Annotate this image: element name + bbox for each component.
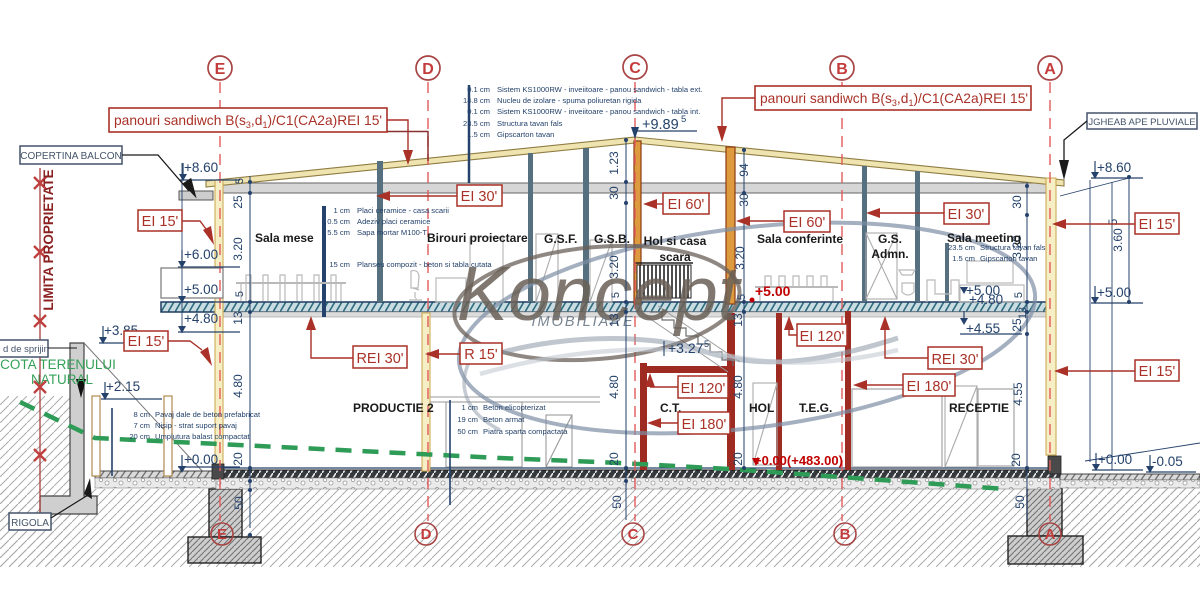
svg-text:Sistem KS1000RW - inveiitoare: Sistem KS1000RW - inveiitoare - panou sa…	[497, 85, 702, 94]
svg-text:Beton elicopterizat: Beton elicopterizat	[483, 403, 546, 412]
svg-text:+0.00: +0.00	[184, 452, 218, 467]
svg-text:EI 180': EI 180'	[682, 417, 727, 433]
svg-text:EI 30': EI 30'	[948, 207, 985, 223]
svg-text:+2.15: +2.15	[106, 379, 140, 394]
svg-text:25: 25	[231, 195, 245, 209]
svg-text:19 cm: 19 cm	[457, 415, 478, 424]
svg-text:5: 5	[736, 294, 748, 300]
svg-text:20: 20	[731, 452, 745, 466]
svg-text:Gipscarton tavan: Gipscarton tavan	[497, 130, 554, 139]
svg-text:Admn.: Admn.	[871, 247, 908, 261]
svg-text:Nisip - strat suport pavaj: Nisip - strat suport pavaj	[155, 421, 237, 430]
svg-text:50: 50	[1013, 495, 1027, 509]
svg-text:20 cm: 20 cm	[129, 432, 150, 441]
svg-text:1.23: 1.23	[607, 151, 621, 175]
svg-text:5: 5	[234, 178, 246, 184]
svg-text:-0.05: -0.05	[1152, 454, 1183, 469]
svg-text:Sala mese: Sala mese	[255, 231, 314, 245]
svg-text:R 15': R 15'	[464, 347, 498, 363]
svg-text:REI 30': REI 30'	[931, 352, 978, 368]
svg-text:LIMITA PROPRIETATE: LIMITA PROPRIETATE	[41, 169, 56, 310]
svg-text:50 cm: 50 cm	[457, 427, 478, 436]
svg-text:+3.27: +3.27	[668, 340, 704, 356]
svg-text:Structura tavan fals: Structura tavan fals	[980, 243, 1046, 252]
svg-text:Placi ceramice - casa scarii: Placi ceramice - casa scarii	[357, 206, 449, 215]
svg-text:Gipscarton tavan: Gipscarton tavan	[980, 254, 1037, 263]
svg-text:+6.00: +6.00	[184, 247, 218, 262]
svg-text:E: E	[217, 526, 227, 543]
svg-text:Sapa mortar M100-T: Sapa mortar M100-T	[357, 228, 427, 237]
svg-text:0.1 cm: 0.1 cm	[467, 85, 490, 94]
svg-text:Planseu compozit - beton si ta: Planseu compozit - beton si tabla cutata	[357, 260, 492, 269]
svg-text:5.5 cm: 5.5 cm	[327, 228, 350, 237]
svg-text:1.5 cm: 1.5 cm	[952, 254, 975, 263]
svg-text:A: A	[1045, 526, 1056, 543]
svg-text:13: 13	[1017, 307, 1029, 319]
svg-text:1 cm: 1 cm	[462, 403, 478, 412]
svg-text:REI 30': REI 30'	[356, 351, 403, 367]
svg-text:C: C	[628, 526, 639, 543]
svg-text:D: D	[422, 61, 434, 78]
svg-text:EI 180': EI 180'	[907, 379, 952, 395]
svg-text:1.5 cm: 1.5 cm	[467, 130, 490, 139]
svg-text:+5.00: +5.00	[755, 283, 791, 299]
svg-text:Sala conferinte: Sala conferinte	[757, 232, 843, 246]
svg-text:4.80: 4.80	[231, 374, 245, 398]
svg-text:A: A	[1044, 61, 1056, 78]
svg-text:Beton armat: Beton armat	[483, 415, 525, 424]
svg-text:7 cm: 7 cm	[134, 421, 150, 430]
svg-text:+8.60: +8.60	[184, 160, 218, 175]
svg-text:B: B	[836, 61, 848, 78]
svg-text:+5.00: +5.00	[184, 282, 218, 297]
svg-text:Structura tavan fals: Structura tavan fals	[497, 119, 563, 128]
svg-text:0.1 cm: 0.1 cm	[467, 107, 490, 116]
svg-text:13: 13	[731, 313, 745, 327]
svg-text:PRODUCTIE 2: PRODUCTIE 2	[353, 401, 434, 415]
svg-text:20: 20	[607, 452, 621, 466]
svg-text:Pavaj dale de beton prefabrica: Pavaj dale de beton prefabricat	[155, 410, 261, 419]
svg-text:20: 20	[1009, 453, 1023, 467]
svg-text:3.60: 3.60	[1111, 228, 1125, 252]
svg-text:+0.00(+483.00): +0.00(+483.00)	[754, 453, 843, 468]
svg-text:3.20: 3.20	[733, 246, 747, 270]
svg-text:14.8 cm: 14.8 cm	[463, 96, 490, 105]
svg-text:EI 15': EI 15'	[142, 214, 179, 230]
svg-text:50: 50	[610, 495, 624, 509]
svg-text:G.S.F.: G.S.F.	[544, 232, 577, 246]
svg-text:Hol si casa: Hol si casa	[644, 234, 707, 248]
svg-text:Nucleu de izolare - spuma poli: Nucleu de izolare - spuma poliuretan rig…	[497, 96, 642, 105]
svg-text:RECEPTIE: RECEPTIE	[949, 401, 1009, 415]
svg-text:EI 120': EI 120'	[681, 381, 726, 397]
svg-text:+5.00: +5.00	[1097, 285, 1131, 300]
svg-text:EI 60': EI 60'	[668, 197, 705, 213]
svg-text:5: 5	[704, 339, 709, 349]
svg-text:Sistem KS1000RW - inveiitoare: Sistem KS1000RW - inveiitoare - panou sa…	[497, 107, 700, 116]
svg-text:Birouri proiectare: Birouri proiectare	[427, 231, 528, 245]
svg-text:d de sprijin: d de sprijin	[3, 344, 49, 355]
svg-text:23.5 cm: 23.5 cm	[463, 119, 490, 128]
svg-text:8 cm: 8 cm	[134, 410, 150, 419]
svg-text:D: D	[421, 526, 432, 543]
svg-text:EI 15': EI 15'	[1139, 364, 1176, 380]
svg-text:23.5 cm: 23.5 cm	[948, 243, 975, 252]
svg-text:25: 25	[1010, 318, 1024, 332]
svg-text:4.80: 4.80	[607, 375, 621, 399]
svg-text:+4.80: +4.80	[969, 292, 1003, 307]
svg-text:G.S.B.: G.S.B.	[594, 232, 630, 246]
svg-text:E: E	[215, 61, 226, 78]
svg-text:30: 30	[737, 193, 751, 207]
svg-text:T.E.G.: T.E.G.	[799, 401, 832, 415]
svg-text:5: 5	[234, 291, 246, 297]
svg-text:COTA TERENULUI: COTA TERENULUI	[0, 357, 116, 372]
svg-text:Piatra sparta compactata: Piatra sparta compactata	[483, 427, 568, 436]
svg-text:JGHEAB APE PLUVIALE: JGHEAB APE PLUVIALE	[1088, 117, 1195, 128]
svg-text:B: B	[840, 526, 851, 543]
svg-text:30: 30	[1010, 195, 1024, 209]
svg-text:EI 120': EI 120'	[800, 329, 845, 345]
svg-text:+8.60: +8.60	[1097, 160, 1131, 175]
svg-text:3.20: 3.20	[231, 237, 245, 261]
svg-text:EI 15': EI 15'	[1139, 217, 1176, 233]
svg-text:G.S.: G.S.	[878, 232, 902, 246]
svg-text:Umplutura balast compactat: Umplutura balast compactat	[155, 432, 250, 441]
svg-text:4.55: 4.55	[1011, 382, 1025, 406]
svg-text:15 cm: 15 cm	[329, 260, 350, 269]
svg-text:COPERTINA BALCON: COPERTINA BALCON	[20, 151, 122, 162]
svg-text:+4.80: +4.80	[184, 311, 218, 326]
svg-text:50: 50	[232, 496, 246, 510]
svg-text:13: 13	[231, 311, 245, 325]
svg-text:13: 13	[607, 313, 621, 327]
svg-text:HOL: HOL	[749, 401, 774, 415]
svg-text:0.5 cm: 0.5 cm	[327, 217, 350, 226]
svg-text:1 cm: 1 cm	[334, 206, 350, 215]
svg-text:RIGOLA: RIGOLA	[11, 518, 49, 529]
svg-text:EI 15': EI 15'	[128, 334, 165, 350]
svg-text:EI 60': EI 60'	[789, 215, 826, 231]
svg-text:Adeziv placi ceramice: Adeziv placi ceramice	[357, 217, 430, 226]
svg-text:94: 94	[737, 163, 751, 177]
svg-text:C: C	[629, 60, 641, 77]
svg-text:30: 30	[607, 186, 621, 200]
svg-text:3.20: 3.20	[607, 255, 621, 279]
svg-text:EI 30': EI 30'	[461, 189, 498, 205]
svg-text:4.80: 4.80	[731, 375, 745, 399]
svg-text:20: 20	[231, 452, 245, 466]
svg-text:5: 5	[1013, 292, 1025, 298]
svg-text:5: 5	[610, 292, 622, 298]
svg-text:scara: scara	[659, 250, 691, 264]
